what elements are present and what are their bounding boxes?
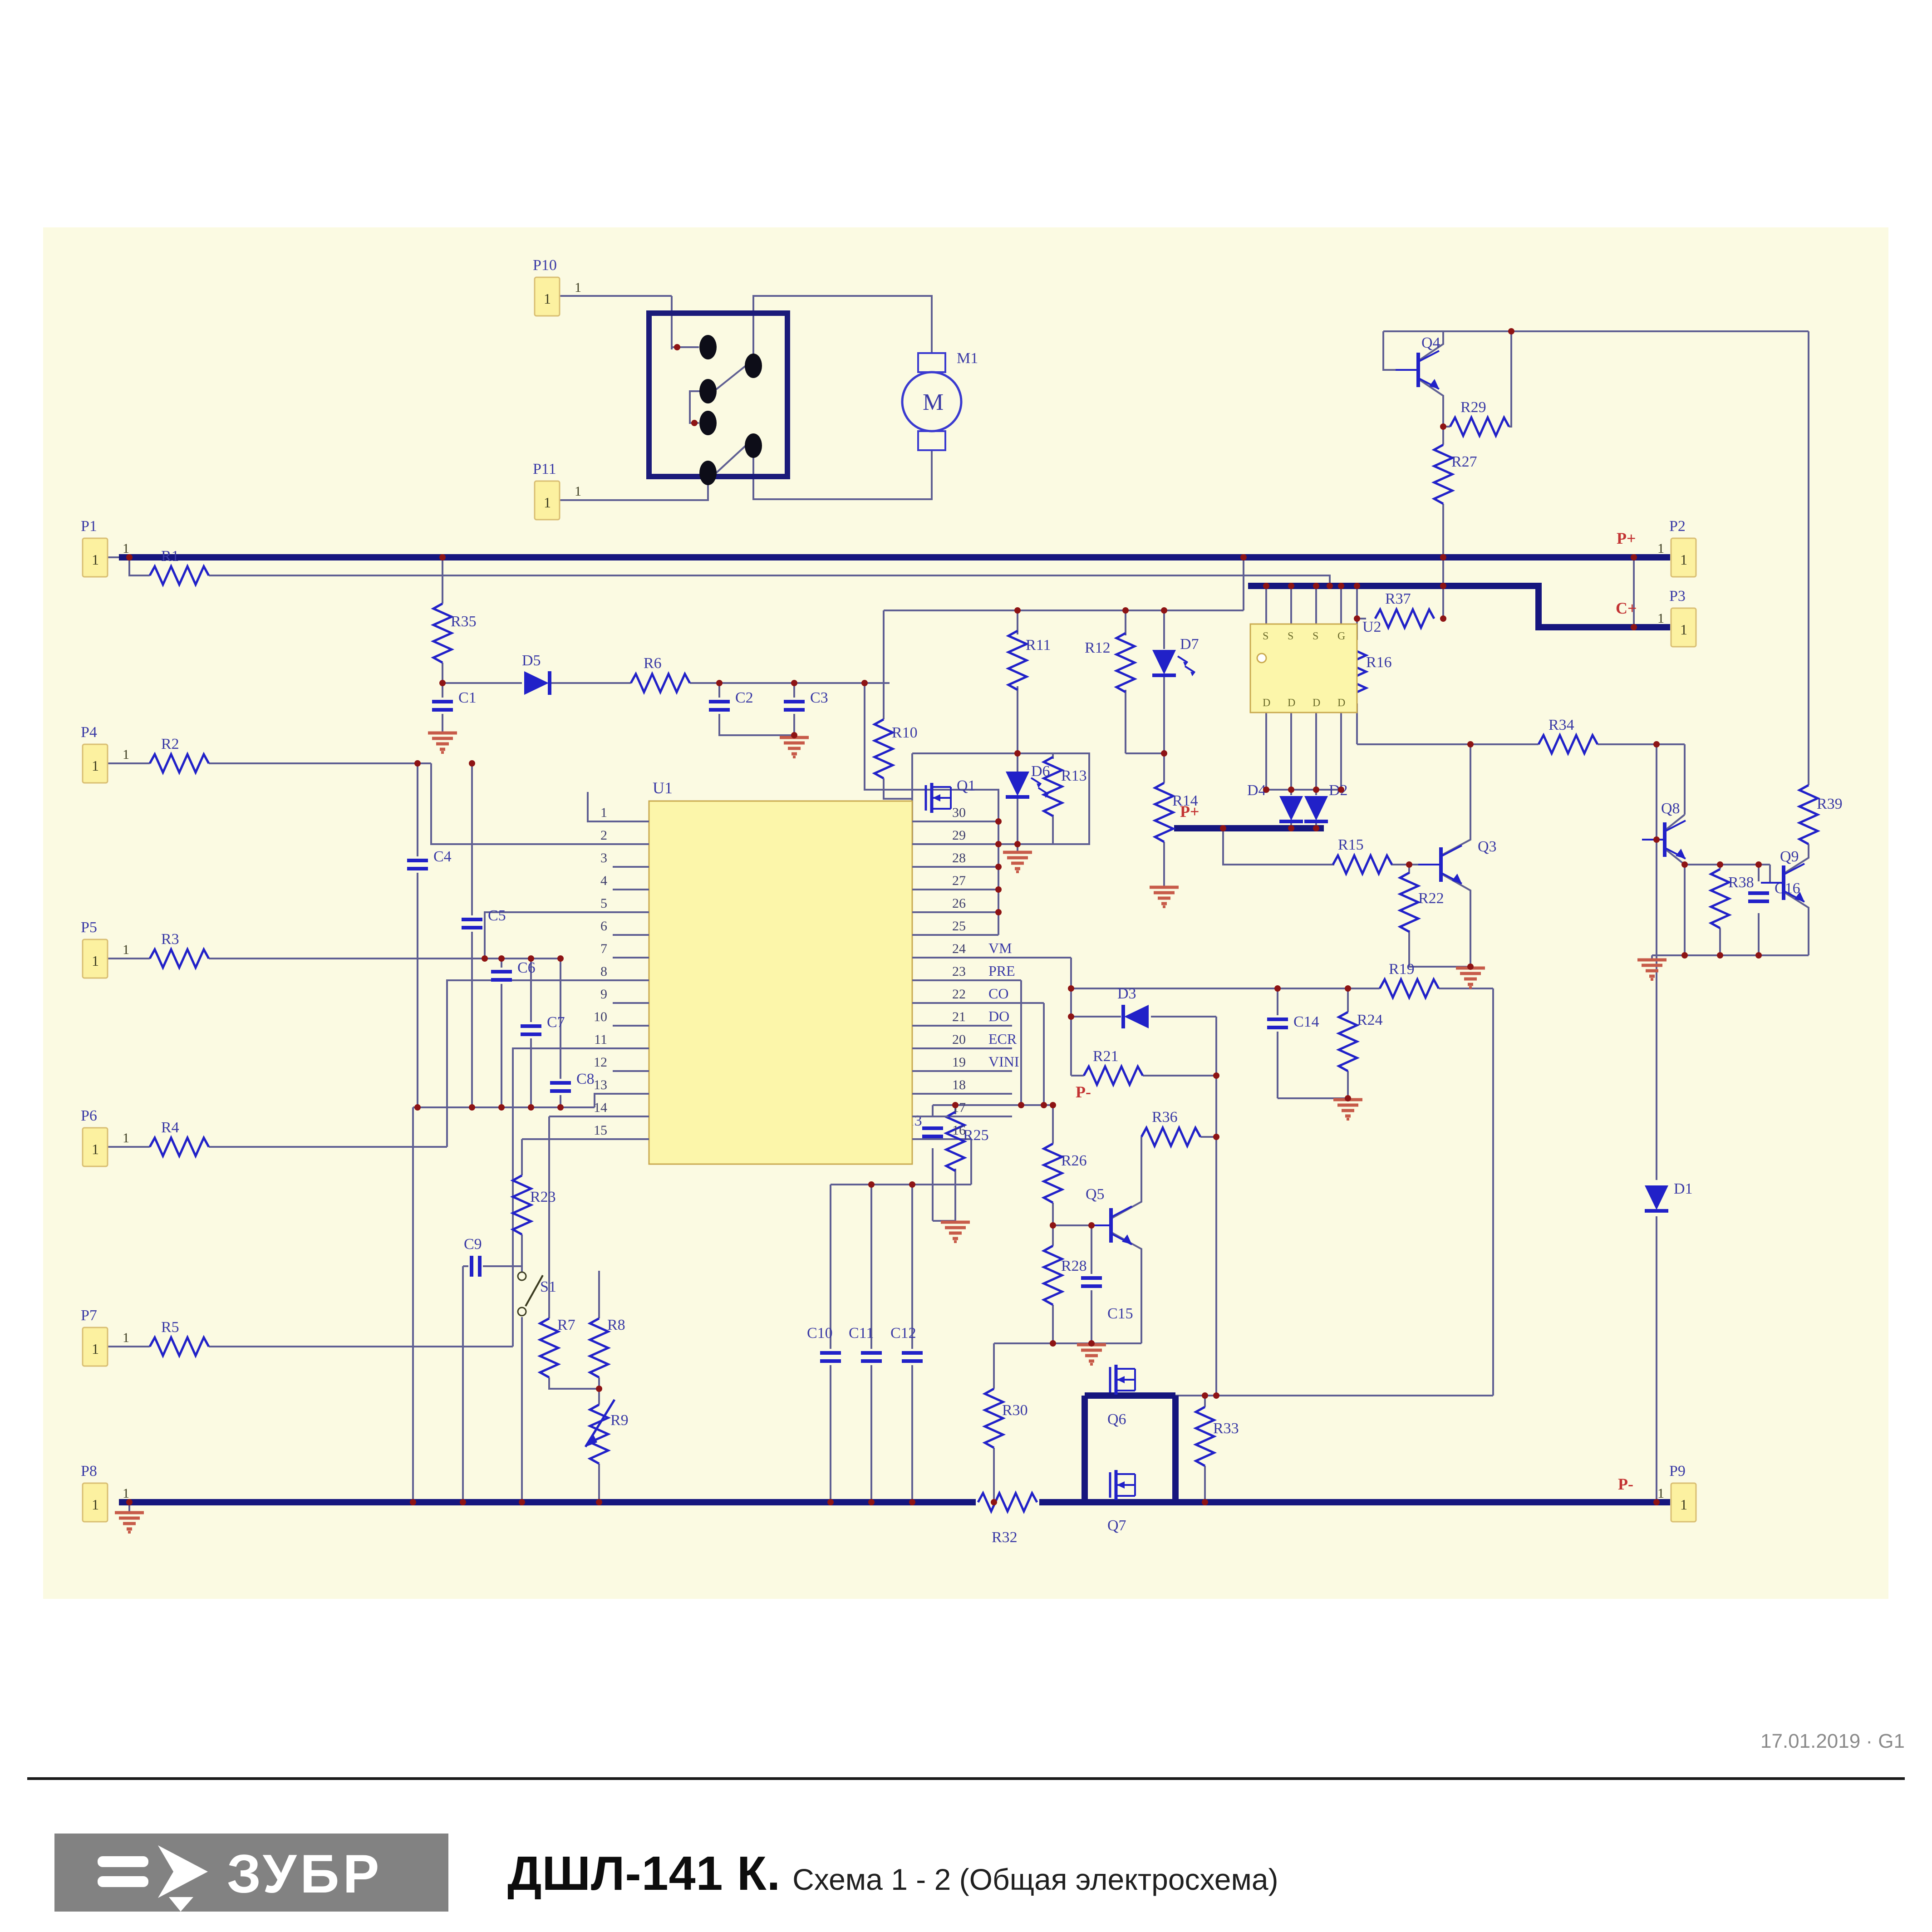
- junction-dot: [1213, 1072, 1219, 1079]
- connector-pad-P5: 1: [92, 953, 99, 969]
- capacitor-label-C5: C5: [488, 907, 506, 924]
- connector-pin-number-P8: 1: [123, 1486, 129, 1501]
- connector-label-P5: P5: [81, 919, 97, 936]
- junction-dot: [1681, 952, 1688, 959]
- ic-pin-number-U1-27: 27: [952, 873, 966, 888]
- ic-pin1-mark-U2: [1257, 654, 1266, 663]
- junction-dot: [909, 1181, 915, 1188]
- connector-pad-P8: 1: [92, 1496, 99, 1513]
- ic-pin-number-U1-21: 21: [952, 1009, 966, 1024]
- junction-dot: [1755, 861, 1762, 868]
- connector-pin-number-P3: 1: [1657, 611, 1664, 626]
- net-label-Pminus: P-: [1618, 1475, 1633, 1493]
- junction-dot: [1050, 1222, 1056, 1229]
- junction-dot: [519, 1499, 525, 1505]
- junction-dot: [1122, 607, 1129, 614]
- resistor-label-R37: R37: [1385, 590, 1411, 607]
- connector-pad-P2: 1: [1680, 551, 1687, 568]
- junction-dot: [498, 1104, 505, 1111]
- ic-pin-name-U1-VM: VM: [988, 940, 1012, 956]
- switch-label-S1: S1: [540, 1278, 556, 1295]
- junction-dot: [1263, 583, 1269, 589]
- junction-dot: [1213, 1134, 1219, 1140]
- ic-pin-number-U1-22: 22: [952, 987, 966, 1002]
- ground-symbol: [793, 756, 796, 758]
- ground-symbol: [128, 1531, 131, 1534]
- switch-contact: [699, 379, 717, 403]
- ground-symbol: [441, 751, 444, 754]
- junction-dot: [439, 680, 446, 686]
- ic-pin-name-U1-ECR: ECR: [988, 1031, 1017, 1047]
- schematic-canvas: R1R2R3R4R5R6R15R19R21R29R32R34R36R37R7R8…: [0, 0, 1932, 1932]
- capacitor-label-C2: C2: [735, 689, 753, 706]
- junction-dot: [1202, 1499, 1208, 1505]
- junction-dot: [1313, 583, 1319, 589]
- connector-pad-P1: 1: [92, 551, 99, 568]
- ground-symbol: [1163, 905, 1165, 908]
- connector-pad-P4: 1: [92, 757, 99, 774]
- ic-label-U1: U1: [653, 779, 673, 797]
- resistor-label-R8: R8: [607, 1317, 625, 1333]
- junction-dot: [1354, 583, 1360, 589]
- ic-pin-name-U2-bottom: D: [1263, 697, 1270, 709]
- connector-pin-number-P2: 1: [1657, 541, 1664, 556]
- connector-pin-number-P5: 1: [123, 942, 129, 957]
- ic-pin-name-U2-top: S: [1263, 630, 1268, 642]
- junction-dot: [1050, 1340, 1056, 1347]
- junction-dot: [995, 841, 1002, 847]
- ic-pin-number-U1-7: 7: [600, 941, 607, 956]
- junction-dot: [482, 955, 488, 962]
- capacitor-label-C9: C9: [464, 1236, 482, 1253]
- ic-pin-number-U1-28: 28: [952, 850, 966, 865]
- mosfet-label-Q7: Q7: [1107, 1517, 1126, 1534]
- footer-separator: [27, 1777, 1905, 1780]
- junction-dot: [1440, 583, 1446, 589]
- junction-dot: [1202, 1392, 1208, 1399]
- junction-dot: [991, 1499, 997, 1505]
- connector-label-P9: P9: [1669, 1463, 1686, 1480]
- junction-dot: [1467, 964, 1474, 970]
- connector-pad-P10: 1: [544, 290, 551, 307]
- motor-letter: M: [923, 389, 944, 415]
- junction-dot: [557, 955, 564, 962]
- junction-dot: [1014, 607, 1021, 614]
- junction-dot: [1440, 615, 1446, 622]
- ic-pin-number-U1-18: 18: [952, 1077, 966, 1092]
- diode-label-D5: D5: [522, 652, 541, 669]
- junction-dot: [1653, 741, 1660, 747]
- transistor-label-Q5: Q5: [1086, 1186, 1105, 1203]
- connector-label-P2: P2: [1669, 518, 1686, 535]
- net-label-Cplus: C+: [1616, 599, 1637, 617]
- zubr-logo-mark: ЗУБР: [54, 1834, 448, 1912]
- ic-pin-number-U1-11: 11: [594, 1032, 607, 1047]
- ground-symbol: [1469, 986, 1472, 989]
- junction-dot: [1014, 841, 1021, 847]
- junction-dot: [1313, 787, 1319, 793]
- ic-pin-name-U2-top: G: [1337, 630, 1345, 642]
- junction-dot: [1288, 583, 1294, 589]
- connector-pad-P9: 1: [1680, 1496, 1687, 1513]
- junction-dot: [1018, 1102, 1024, 1108]
- junction-dot: [995, 886, 1002, 893]
- ic-pin-number-U1-24: 24: [952, 941, 966, 956]
- schema-subtitle: Схема 1 - 2 (Общая электросхема): [781, 1863, 1278, 1896]
- junction-dot: [1240, 554, 1247, 560]
- resistor-label-R35: R35: [451, 613, 477, 630]
- junction-dot: [716, 680, 723, 686]
- resistor-label-R32: R32: [992, 1529, 1018, 1546]
- resistor-label-R11: R11: [1026, 637, 1051, 654]
- junction-dot: [1088, 1340, 1095, 1347]
- ic-pin-name-U1-CO: CO: [988, 985, 1008, 1002]
- resistor-label-R34: R34: [1549, 717, 1574, 733]
- connector-label-P1: P1: [81, 518, 97, 535]
- junction-dot: [596, 1499, 602, 1505]
- transistor-label-Q3: Q3: [1478, 838, 1497, 855]
- resistor-label-R4: R4: [161, 1119, 179, 1136]
- junction-dot: [995, 864, 1002, 870]
- resistor-label-R12: R12: [1085, 639, 1111, 656]
- junction-dot: [469, 760, 475, 767]
- ic-pin-name-U1-PRE: PRE: [988, 963, 1015, 979]
- capacitor-label-C7: C7: [547, 1014, 565, 1031]
- ic-pin-number-U1-23: 23: [952, 964, 966, 979]
- junction-dot: [1327, 583, 1333, 589]
- junction-dot: [1354, 615, 1360, 622]
- ic-pin-number-U1-9: 9: [600, 987, 607, 1002]
- ic-label-U2: U2: [1362, 619, 1381, 635]
- switch-S1-throw: [518, 1308, 526, 1316]
- junction-dot: [1288, 825, 1294, 831]
- junction-dot: [1717, 952, 1723, 959]
- model-title: ДШЛ-141 К.: [507, 1847, 781, 1900]
- capacitor-label-C1: C1: [458, 689, 477, 706]
- resistor-label-R16: R16: [1366, 654, 1392, 671]
- junction-dot: [1338, 787, 1344, 793]
- ic-pin-number-U1-12: 12: [594, 1055, 607, 1070]
- junction-dot: [414, 760, 421, 767]
- resistor-label-R22: R22: [1418, 890, 1444, 907]
- junction-dot: [498, 955, 505, 962]
- logo-bar-2: [98, 1876, 148, 1887]
- ground-symbol: [1090, 1363, 1093, 1366]
- junction-dot: [1681, 861, 1688, 868]
- transistor-label-Q9: Q9: [1780, 848, 1799, 865]
- mosfet-label-Q6: Q6: [1107, 1411, 1126, 1428]
- junction-dot: [1161, 607, 1167, 614]
- ic-pin-number-U1-19: 19: [952, 1055, 966, 1070]
- ic-pin-number-U1-30: 30: [952, 805, 966, 820]
- diode-label-D3: D3: [1117, 985, 1136, 1002]
- capacitor-label-C11: C11: [849, 1325, 874, 1342]
- ic-pin-number-U1-29: 29: [952, 828, 966, 843]
- junction-dot: [1467, 741, 1474, 747]
- resistor-label-R26: R26: [1061, 1152, 1087, 1169]
- ic-pin-number-U1-16: 16: [952, 1123, 966, 1138]
- junction-dot: [1345, 985, 1351, 992]
- capacitor-label-C8: C8: [576, 1071, 595, 1087]
- switch-contact: [699, 411, 717, 435]
- ic-pin-name-U1-VINI: VINI: [988, 1053, 1019, 1070]
- ic-U1: [649, 801, 912, 1164]
- junction-dot: [596, 1386, 602, 1392]
- ic-pin-number-U1-26: 26: [952, 896, 966, 911]
- capacitor-label-C12: C12: [890, 1325, 916, 1342]
- junction-dot: [1338, 583, 1344, 589]
- motor-label-M1: M1: [957, 350, 978, 367]
- connector-label-P7: P7: [81, 1307, 97, 1324]
- connector-pad-P7: 1: [92, 1341, 99, 1357]
- ic-pin-number-U1-2: 2: [600, 828, 607, 843]
- ic-pin-name-U2-top: S: [1288, 630, 1293, 642]
- junction-dot: [1274, 985, 1281, 992]
- junction-dot: [1440, 423, 1446, 430]
- diode-label-D7: D7: [1180, 636, 1199, 653]
- resistor-label-R3: R3: [161, 931, 179, 948]
- ic-pin-name-U2-bottom: D: [1313, 697, 1320, 709]
- connector-label-P3: P3: [1669, 588, 1686, 605]
- ic-pin-number-U1-3: 3: [600, 850, 607, 865]
- junction-dot: [1288, 787, 1294, 793]
- junction-dot: [1014, 750, 1021, 757]
- resistor-label-R6: R6: [644, 655, 662, 672]
- ic-pin-name-U2-top: S: [1313, 630, 1318, 642]
- transistor-label-Q8: Q8: [1661, 800, 1680, 817]
- connector-pin-number-P1: 1: [123, 541, 129, 556]
- ground-symbol: [1016, 870, 1019, 873]
- ic-pin-number-U1-20: 20: [952, 1032, 966, 1047]
- zubr-logo: ЗУБР: [54, 1834, 448, 1912]
- connector-label-P11: P11: [533, 461, 556, 477]
- junction-dot: [439, 554, 446, 560]
- resistor-label-R28: R28: [1061, 1258, 1087, 1274]
- junction-dot: [1161, 750, 1167, 757]
- capacitor-label-C4: C4: [433, 848, 452, 865]
- junction-dot: [1653, 836, 1660, 843]
- ic-pin-number-U1-6: 6: [600, 919, 607, 934]
- junction-dot: [1755, 952, 1762, 959]
- resistor-label-R39: R39: [1817, 796, 1843, 812]
- capacitor-label-C6: C6: [517, 959, 536, 976]
- junction-dot: [469, 1104, 475, 1111]
- ic-pin-number-U1-8: 8: [600, 964, 607, 979]
- ground-symbol: [1651, 978, 1653, 981]
- ic-pin-number-U1-14: 14: [594, 1100, 607, 1115]
- transistor-label-Q4: Q4: [1421, 334, 1440, 351]
- junction-dot: [995, 818, 1002, 825]
- connector-pin-number-P6: 1: [123, 1131, 129, 1145]
- junction-dot: [909, 1499, 915, 1505]
- resistor-label-R21: R21: [1093, 1048, 1119, 1065]
- resistor-label-R13: R13: [1061, 767, 1087, 784]
- connector-pad-P3: 1: [1680, 621, 1687, 638]
- resistor-label-R1: R1: [161, 548, 179, 565]
- junction-dot: [1653, 1499, 1660, 1505]
- junction-dot: [126, 554, 133, 560]
- resistor-label-R36: R36: [1152, 1109, 1178, 1126]
- resistor-label-R10: R10: [892, 724, 918, 741]
- junction-dot: [1213, 1392, 1219, 1399]
- junction-dot: [1088, 1222, 1095, 1229]
- ic-pin-number-U1-5: 5: [600, 896, 607, 911]
- resistor-label-R15: R15: [1338, 836, 1364, 853]
- junction-dot: [868, 1499, 875, 1505]
- revision-date: 17.01.2019 · G1: [1760, 1730, 1905, 1753]
- junction-dot: [1631, 554, 1637, 560]
- title-block: ДШЛ-141 К.Схема 1 - 2 (Общая электросхем…: [507, 1846, 1278, 1901]
- connector-pin-number-P10: 1: [575, 280, 581, 295]
- switch-contact: [699, 335, 717, 359]
- net-label-Pminus: P-: [1076, 1083, 1091, 1101]
- connector-pin-number-P4: 1: [123, 747, 129, 762]
- connector-label-P6: P6: [81, 1107, 97, 1124]
- ic-pin-number-U1-4: 4: [600, 873, 607, 888]
- ic-pin-name-U1-DO: DO: [988, 1008, 1009, 1024]
- junction-dot: [1068, 985, 1074, 992]
- junction-dot: [791, 732, 797, 738]
- connector-pad-P11: 1: [544, 494, 551, 511]
- ic-pin-number-U1-25: 25: [952, 919, 966, 934]
- junction-dot: [1345, 1095, 1351, 1101]
- junction-dot: [126, 1499, 133, 1505]
- resistor-label-R19: R19: [1389, 961, 1415, 978]
- junction-dot: [528, 955, 534, 962]
- resistor-label-R27: R27: [1451, 453, 1477, 470]
- capacitor-label-C15: C15: [1107, 1305, 1133, 1322]
- junction-dot: [952, 1102, 959, 1108]
- diode-label-D6: D6: [1031, 763, 1050, 780]
- connector-pad-P6: 1: [92, 1141, 99, 1157]
- junction-dot: [868, 1181, 875, 1188]
- junction-dot: [1717, 861, 1723, 868]
- junction-dot: [1631, 624, 1637, 630]
- junction-dot: [691, 420, 698, 426]
- capacitor-label-C10: C10: [807, 1325, 833, 1342]
- junction-dot: [861, 680, 868, 686]
- switch-contact: [745, 354, 762, 378]
- junction-dot: [674, 344, 680, 350]
- ic-pin-number-U1-15: 15: [594, 1123, 607, 1138]
- mosfet-label-Q1: Q1: [957, 777, 976, 794]
- junction-dot: [528, 1104, 534, 1111]
- junction-dot: [414, 1104, 421, 1111]
- logo-text: ЗУБР: [227, 1844, 383, 1904]
- ic-pin-number-U1-10: 10: [594, 1009, 607, 1024]
- net-label-Pplus: P+: [1180, 802, 1200, 821]
- junction-dot: [557, 1104, 564, 1111]
- resistor-label-R2: R2: [161, 736, 179, 752]
- junction-dot: [1068, 1013, 1074, 1020]
- switch-contact: [699, 461, 717, 485]
- resistor-label-R23: R23: [530, 1189, 556, 1205]
- diode-label-D1: D1: [1674, 1180, 1693, 1197]
- logo-bar-1: [98, 1856, 148, 1867]
- connector-pin-number-P9: 1: [1657, 1486, 1664, 1501]
- ground-symbol: [1347, 1118, 1349, 1121]
- connector-pin-number-P11: 1: [575, 484, 581, 499]
- capacitor-label-C14: C14: [1293, 1013, 1319, 1030]
- junction-dot: [1041, 1102, 1047, 1108]
- capacitor-label-C3: C3: [810, 689, 828, 706]
- ic-pin-name-U2-bottom: D: [1288, 697, 1295, 709]
- resistor-label-R24: R24: [1357, 1012, 1383, 1028]
- resistor-label-R29: R29: [1460, 399, 1486, 416]
- ground-symbol: [954, 1240, 957, 1243]
- connector-label-P4: P4: [81, 724, 97, 741]
- junction-dot: [1313, 825, 1319, 831]
- resistor-label-R30: R30: [1002, 1402, 1028, 1419]
- resistor-label-R38: R38: [1728, 874, 1754, 891]
- junction-dot: [827, 1499, 834, 1505]
- net-label-Pplus: P+: [1617, 529, 1636, 547]
- resistor-label-R9: R9: [610, 1412, 629, 1429]
- junction-dot: [460, 1499, 466, 1505]
- resistor-label-R33: R33: [1213, 1420, 1239, 1437]
- junction-dot: [1508, 328, 1514, 334]
- junction-dot: [410, 1499, 416, 1505]
- connector-pin-number-P7: 1: [123, 1330, 129, 1345]
- switch-S1-pole: [518, 1272, 526, 1280]
- ic-pin-name-U2-bottom: D: [1337, 697, 1345, 709]
- switch-contact: [745, 433, 762, 458]
- connector-label-P8: P8: [81, 1463, 97, 1480]
- resistor-label-R25: R25: [963, 1127, 989, 1144]
- ic-pin-number-U1-1: 1: [600, 805, 607, 820]
- junction-dot: [1440, 554, 1446, 560]
- resistor-label-R7: R7: [557, 1317, 575, 1333]
- junction-dot: [1220, 825, 1226, 831]
- resistor-label-R5: R5: [161, 1319, 179, 1336]
- junction-dot: [995, 909, 1002, 915]
- junction-dot: [1050, 1102, 1056, 1108]
- junction-dot: [1406, 861, 1412, 868]
- connector-label-P10: P10: [533, 257, 557, 274]
- page: R1R2R3R4R5R6R15R19R21R29R32R34R36R37R7R8…: [0, 0, 1932, 1932]
- junction-dot: [791, 680, 797, 686]
- ic-pin-number-U1-13: 13: [594, 1077, 607, 1092]
- junction-dot: [1263, 787, 1269, 793]
